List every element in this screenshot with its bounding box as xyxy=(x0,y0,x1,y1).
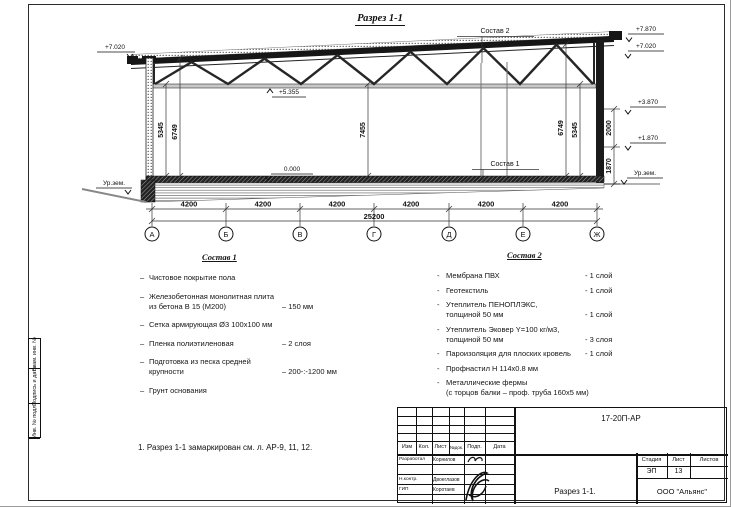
roof-right-endcap xyxy=(609,31,622,40)
item-value: - 1 слой xyxy=(585,349,612,359)
item-value: – 150 мм xyxy=(282,302,313,312)
item-text: Пароизоляция для плоских кровель xyxy=(446,349,571,359)
item-value: – 2 слоя xyxy=(282,339,311,349)
list-item: –Сетка армирующая Ø3 100х100 мм xyxy=(140,320,432,330)
ground-level-left-label: Ур.зем. xyxy=(103,180,125,187)
item-text: Чистовое покрытие пола xyxy=(149,273,235,283)
dim-wall-1870: 1870 xyxy=(606,158,613,174)
list-item: -Утеплитель Эковер Y=100 кг/м3, толщиной… xyxy=(437,325,729,345)
axis-label: Е xyxy=(520,230,525,239)
axis-label: Ж xyxy=(594,230,601,239)
item-text: Геотекстиль xyxy=(446,286,488,296)
bullet-dash: - xyxy=(437,349,440,359)
list-item: -Геотекстиль- 1 слой xyxy=(437,286,729,296)
list-item: -Профнастил Н 114х0.8 мм xyxy=(437,364,729,374)
item-text: Сетка армирующая Ø3 100х100 мм xyxy=(149,320,272,330)
vertical-dimensions xyxy=(163,41,620,187)
strip-label-inv: Инв. № подл. xyxy=(32,404,38,438)
item-value: - 1 слой xyxy=(585,286,612,296)
axis-label: Г xyxy=(372,230,376,239)
list-item: –Чистовое покрытие пола xyxy=(140,273,432,283)
right-wall xyxy=(596,40,604,185)
bay-dim: 4200 xyxy=(329,200,346,209)
elev-truss-bottom: +5.355 xyxy=(279,89,299,96)
list-item: -Утеплитель ПЕНОПЛЭКС, толщиной 50 мм- 1… xyxy=(437,300,729,320)
signatures xyxy=(398,408,728,504)
sostav2-list: Состав 2 -Мембрана ПВХ- 1 слой -Геотекст… xyxy=(437,250,729,403)
sostav1-title: Состав 1 xyxy=(202,252,237,262)
ref-sostav1: Состав 1 xyxy=(490,161,519,168)
dim-left-6749: 6749 xyxy=(172,124,179,140)
bay-dim: 4200 xyxy=(181,200,198,209)
strip-cell: Взам. инв. № xyxy=(29,339,40,369)
item-value: - 1 слой xyxy=(585,271,612,281)
axis-label: Д xyxy=(446,230,451,239)
bay-dim: 4200 xyxy=(403,200,420,209)
elev-left-eave: +7.020 xyxy=(105,44,125,51)
elev-right-eave: +7.020 xyxy=(636,43,656,50)
bay-dim: 4200 xyxy=(478,200,495,209)
elev-right-mid: +3.870 xyxy=(638,99,658,106)
item-text: Железобетонная монолитная плита из бетон… xyxy=(149,292,274,312)
sheet-title-text: Разрез 1-1 xyxy=(355,13,405,26)
item-text: Утеплитель ПЕНОПЛЭКС, толщиной 50 мм xyxy=(446,300,538,320)
list-item: –Железобетонная монолитная плита из бето… xyxy=(140,292,432,312)
ref-sostav2: Состав 2 xyxy=(480,28,509,35)
item-value: - 1 слой xyxy=(585,310,612,320)
item-value: - 3 слоя xyxy=(585,335,612,345)
item-text: Металлические фермы (с торцов балки – пр… xyxy=(446,378,589,398)
list-item: -Пароизоляция для плоских кровель- 1 сло… xyxy=(437,349,729,359)
item-text: Профнастил Н 114х0.8 мм xyxy=(446,364,538,374)
bullet-dash: - xyxy=(437,378,440,388)
dim-right-6749: 6749 xyxy=(558,120,565,136)
bullet-dash: – xyxy=(140,386,144,396)
axis-label: А xyxy=(149,230,154,239)
title-block: 17-20П-АР Изм Кол. Лист №док. Подп. Дата… xyxy=(397,407,727,503)
bullet-dash: – xyxy=(140,357,144,367)
item-text: Подготовка из песка средней крупности xyxy=(149,357,251,377)
walls xyxy=(142,40,604,185)
elev-right-low: +1.870 xyxy=(638,135,658,142)
strip-cell: Инв. № подл. xyxy=(29,404,40,439)
side-strip: Взам. инв. № Подпись и дата Инв. № подл. xyxy=(28,338,41,438)
ground-line-left xyxy=(82,189,146,202)
item-text: Грунт основания xyxy=(149,386,207,396)
strip-label-podpis: Подпись и дата xyxy=(32,366,38,406)
elev-floor: 0.000 xyxy=(284,166,301,173)
floor-slab xyxy=(146,176,604,183)
bullet-dash: - xyxy=(437,286,440,296)
sheet-title: Разрез 1-1 xyxy=(325,8,435,26)
bullet-dash: – xyxy=(140,273,144,283)
list-item: –Пленка полиэтиленовая– 2 слоя xyxy=(140,339,432,349)
list-item: -Металлические фермы (с торцов балки – п… xyxy=(437,378,729,398)
footing xyxy=(141,180,155,202)
dim-right-5345: 5345 xyxy=(572,122,579,138)
left-wall xyxy=(146,58,153,182)
axis-label: Б xyxy=(224,230,229,239)
bullet-dash: - xyxy=(437,325,440,335)
drawing-sheet: 5345 6749 7455 6749 5345 2000 1870 +7.02… xyxy=(0,0,731,507)
roof-left-endcap xyxy=(127,56,138,64)
elev-ridge: +7.870 xyxy=(636,26,656,33)
bay-dim: 4200 xyxy=(255,200,272,209)
item-text: Пленка полиэтиленовая xyxy=(149,339,234,349)
sheet-note: 1. Разрез 1-1 замаркирован см. л. АР-9, … xyxy=(138,443,312,452)
bullet-dash: - xyxy=(437,364,440,374)
dim-mid-7455: 7455 xyxy=(360,122,367,138)
bullet-dash: – xyxy=(140,320,144,330)
bullet-dash: - xyxy=(437,300,440,310)
signature-razrabotal xyxy=(468,457,482,462)
sostav1-list: Состав 1 –Чистовое покрытие пола –Железо… xyxy=(140,252,432,404)
axis-label: В xyxy=(297,230,302,239)
bullet-dash: - xyxy=(437,271,440,281)
sand-layer xyxy=(146,183,604,202)
list-item: –Грунт основания xyxy=(140,386,432,396)
item-text: Утеплитель Эковер Y=100 кг/м3, толщиной … xyxy=(446,325,559,345)
item-text: Мембрана ПВХ xyxy=(446,271,500,281)
roof xyxy=(127,31,622,69)
bullet-dash: – xyxy=(140,292,144,302)
dim-left-5345: 5345 xyxy=(158,122,165,138)
bay-dim: 4200 xyxy=(552,200,569,209)
bullet-dash: – xyxy=(140,339,144,349)
strip-cell: Подпись и дата xyxy=(29,369,40,404)
list-item: –Подготовка из песка средней крупности– … xyxy=(140,357,432,377)
ground-level-right-label: Ур.зем. xyxy=(634,170,656,177)
item-value: – 200-:-1200 мм xyxy=(282,367,337,377)
floor xyxy=(82,176,660,202)
total-dim: 25200 xyxy=(364,212,385,221)
list-item: -Мембрана ПВХ- 1 слой xyxy=(437,271,729,281)
dim-wall-2000: 2000 xyxy=(606,120,613,136)
sostav2-title: Состав 2 xyxy=(507,250,542,260)
